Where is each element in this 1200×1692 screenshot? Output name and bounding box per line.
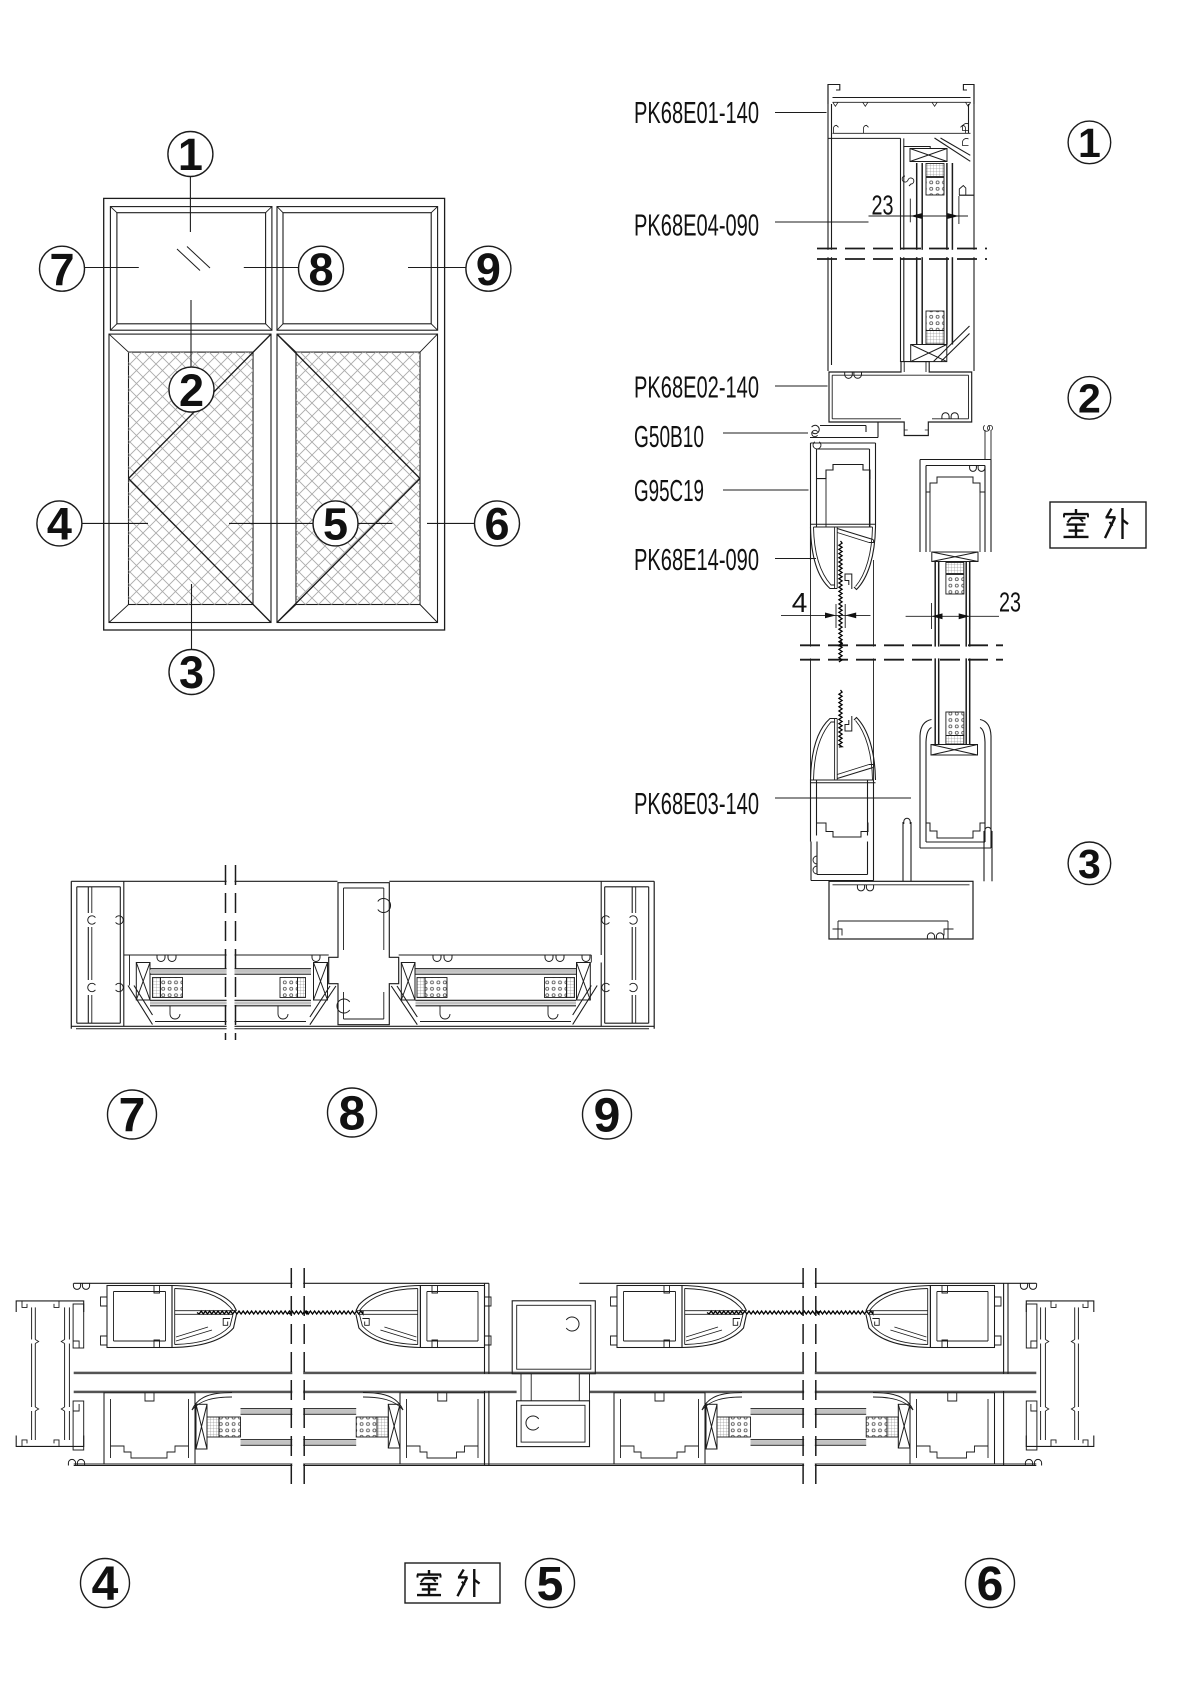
svg-text:3: 3 <box>1078 841 1101 887</box>
svg-text:7: 7 <box>119 1090 146 1143</box>
svg-text:PK68E03-140: PK68E03-140 <box>634 786 759 821</box>
svg-text:3: 3 <box>179 647 204 698</box>
svg-text:G95C19: G95C19 <box>634 473 704 508</box>
svg-text:23: 23 <box>999 587 1021 618</box>
svg-text:PK68E14-090: PK68E14-090 <box>634 542 759 577</box>
svg-text:6: 6 <box>977 1558 1004 1611</box>
svg-text:5: 5 <box>537 1558 564 1611</box>
svg-text:PK68E01-140: PK68E01-140 <box>634 95 759 130</box>
svg-text:G50B10: G50B10 <box>634 419 704 454</box>
svg-text:2: 2 <box>179 365 204 416</box>
svg-text:9: 9 <box>476 244 501 295</box>
svg-text:23: 23 <box>872 190 894 221</box>
svg-text:8: 8 <box>308 244 333 295</box>
svg-text:4: 4 <box>792 587 808 618</box>
svg-text:PK68E04-090: PK68E04-090 <box>634 208 759 243</box>
svg-text:1: 1 <box>1078 120 1101 166</box>
svg-text:4: 4 <box>47 499 72 550</box>
svg-text:5: 5 <box>323 499 348 550</box>
svg-text:6: 6 <box>484 499 509 550</box>
svg-text:8: 8 <box>339 1088 366 1141</box>
svg-text:4: 4 <box>92 1558 119 1611</box>
svg-text:2: 2 <box>1078 376 1101 422</box>
svg-text:1: 1 <box>178 129 203 180</box>
svg-text:PK68E02-140: PK68E02-140 <box>634 370 759 405</box>
svg-text:7: 7 <box>49 244 74 295</box>
svg-text:9: 9 <box>594 1090 621 1143</box>
